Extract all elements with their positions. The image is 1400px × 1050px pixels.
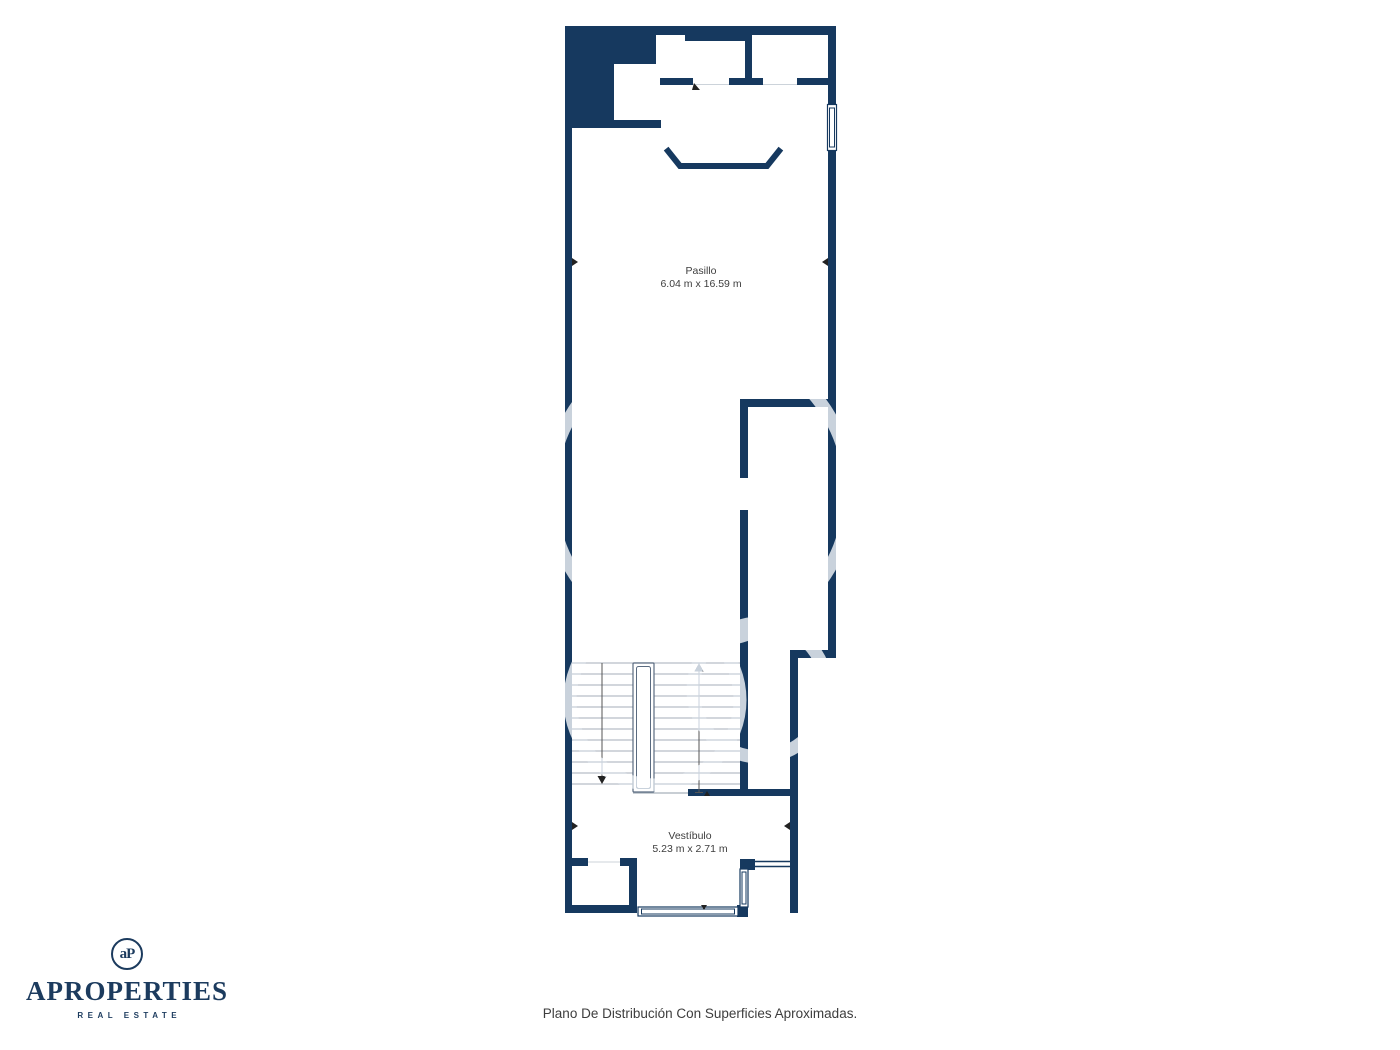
aproperties-logo: aP APROPERTIES REAL ESTATE: [38, 938, 216, 1020]
terrace-opening: [755, 862, 790, 867]
room-name: Pasillo: [565, 265, 837, 278]
door-openings: [588, 85, 797, 863]
room-dimensions: 6.04 m x 16.59 m: [565, 278, 837, 291]
room-label-pasillo: Pasillo 6.04 m x 16.59 m: [565, 265, 837, 291]
wall-ticks: [572, 83, 828, 910]
bay-marker: [668, 151, 779, 166]
vestibule-side-window: [740, 869, 748, 907]
logo-brand: APROPERTIES: [26, 976, 228, 1007]
staircase: [572, 663, 740, 796]
room-dimensions: 5.23 m x 2.71 m: [565, 843, 815, 856]
logo-tagline: REAL ESTATE: [73, 1011, 181, 1020]
logo-monogram-icon: aP: [111, 938, 143, 970]
floorplan-page: Pasillo 6.04 m x 16.59 m Vestíbulo 5.23 …: [0, 0, 1400, 1050]
floorplan-drawing: [0, 0, 1400, 1050]
room-label-vestibulo: Vestíbulo 5.23 m x 2.71 m: [565, 830, 815, 856]
logo-monogram: aP: [120, 946, 135, 963]
bottom-window: [638, 907, 738, 916]
room-name: Vestíbulo: [565, 830, 815, 843]
walls: [565, 26, 836, 917]
right-wall-window: [828, 105, 837, 151]
